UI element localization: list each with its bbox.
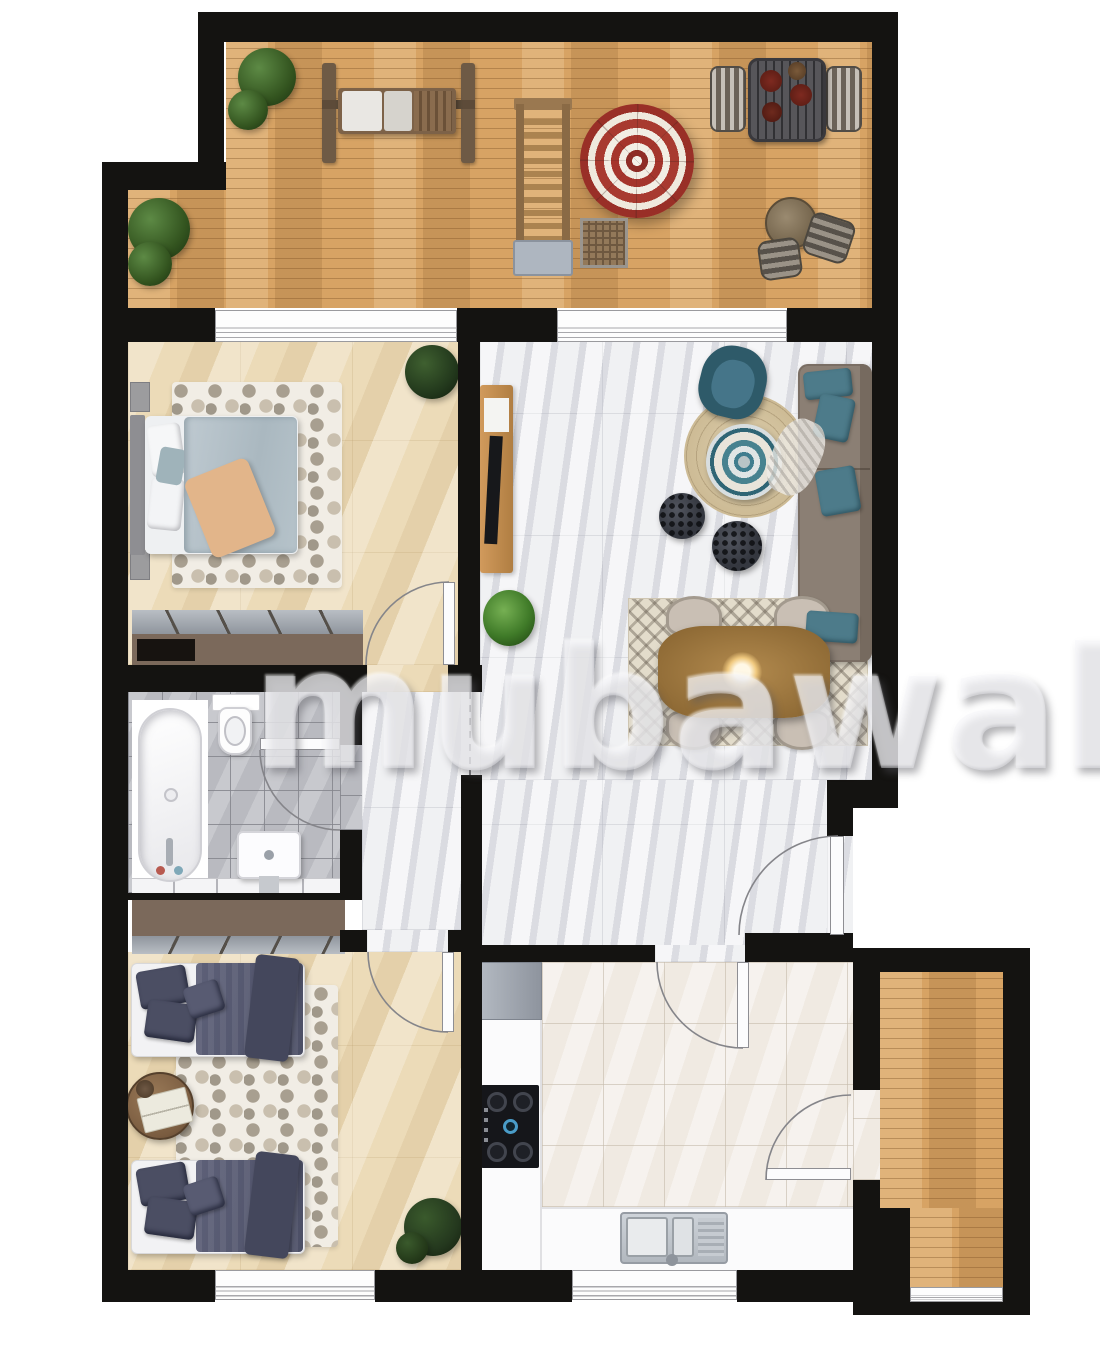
floor-plan: mubawab	[0, 0, 1100, 1357]
door-swing-arcs	[0, 0, 1100, 1357]
